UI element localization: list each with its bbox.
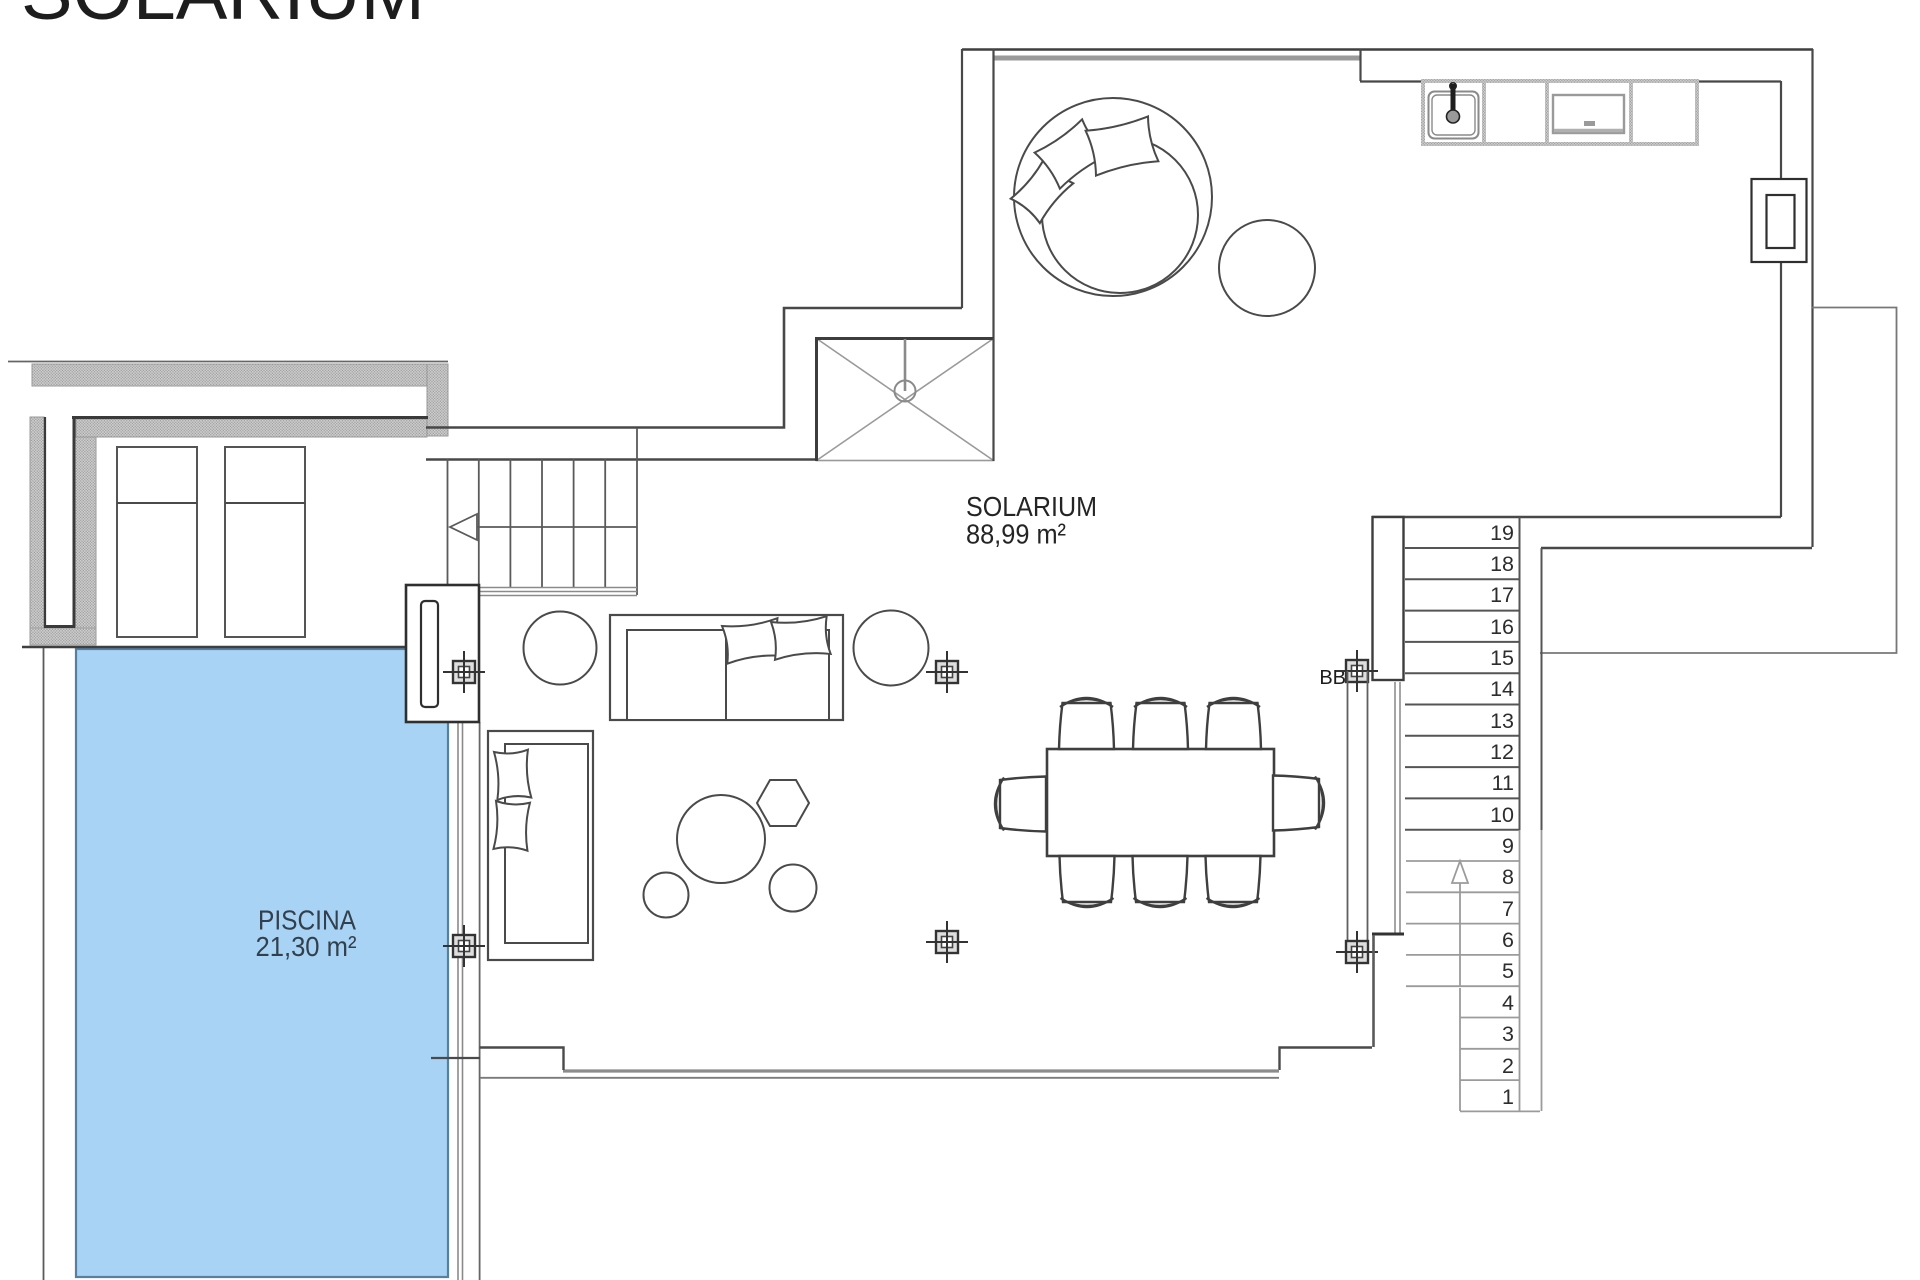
svg-text:10: 10 — [1490, 803, 1514, 827]
svg-text:17: 17 — [1490, 583, 1514, 607]
svg-text:SOLARIUM: SOLARIUM — [21, 0, 425, 36]
svg-text:11: 11 — [1492, 771, 1514, 795]
svg-text:18: 18 — [1490, 552, 1514, 576]
svg-text:21,30 m²: 21,30 m² — [256, 931, 357, 962]
svg-text:6: 6 — [1502, 928, 1514, 952]
svg-text:1: 1 — [1502, 1085, 1514, 1109]
svg-text:9: 9 — [1502, 834, 1514, 858]
svg-text:13: 13 — [1490, 709, 1514, 733]
svg-text:19: 19 — [1490, 521, 1514, 545]
svg-text:3: 3 — [1502, 1022, 1514, 1046]
svg-text:5: 5 — [1502, 959, 1514, 983]
svg-text:SOLARIUM: SOLARIUM — [966, 491, 1097, 522]
svg-text:16: 16 — [1490, 615, 1514, 639]
svg-text:8: 8 — [1502, 865, 1514, 889]
svg-text:2: 2 — [1502, 1054, 1514, 1078]
svg-text:14: 14 — [1490, 677, 1514, 701]
svg-text:12: 12 — [1490, 740, 1514, 764]
svg-text:7: 7 — [1502, 897, 1514, 921]
svg-text:88,99 m²: 88,99 m² — [966, 519, 1066, 550]
svg-text:4: 4 — [1502, 991, 1514, 1015]
svg-text:15: 15 — [1490, 646, 1514, 670]
